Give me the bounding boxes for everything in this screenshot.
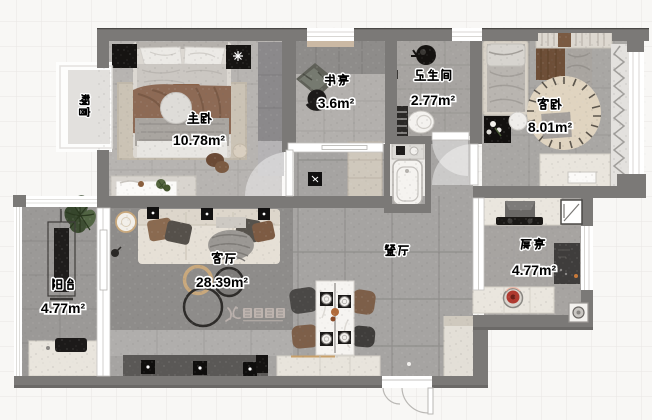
- svg-text:4.77m²: 4.77m²: [41, 300, 86, 316]
- svg-text:10.78m²: 10.78m²: [173, 132, 225, 148]
- svg-text:8.01m²: 8.01m²: [528, 119, 573, 135]
- svg-text:4.77m²: 4.77m²: [512, 262, 557, 278]
- svg-text:2.77m²: 2.77m²: [411, 92, 456, 108]
- svg-text:3.6m²: 3.6m²: [318, 95, 355, 111]
- svg-text:28.39m²: 28.39m²: [196, 274, 248, 290]
